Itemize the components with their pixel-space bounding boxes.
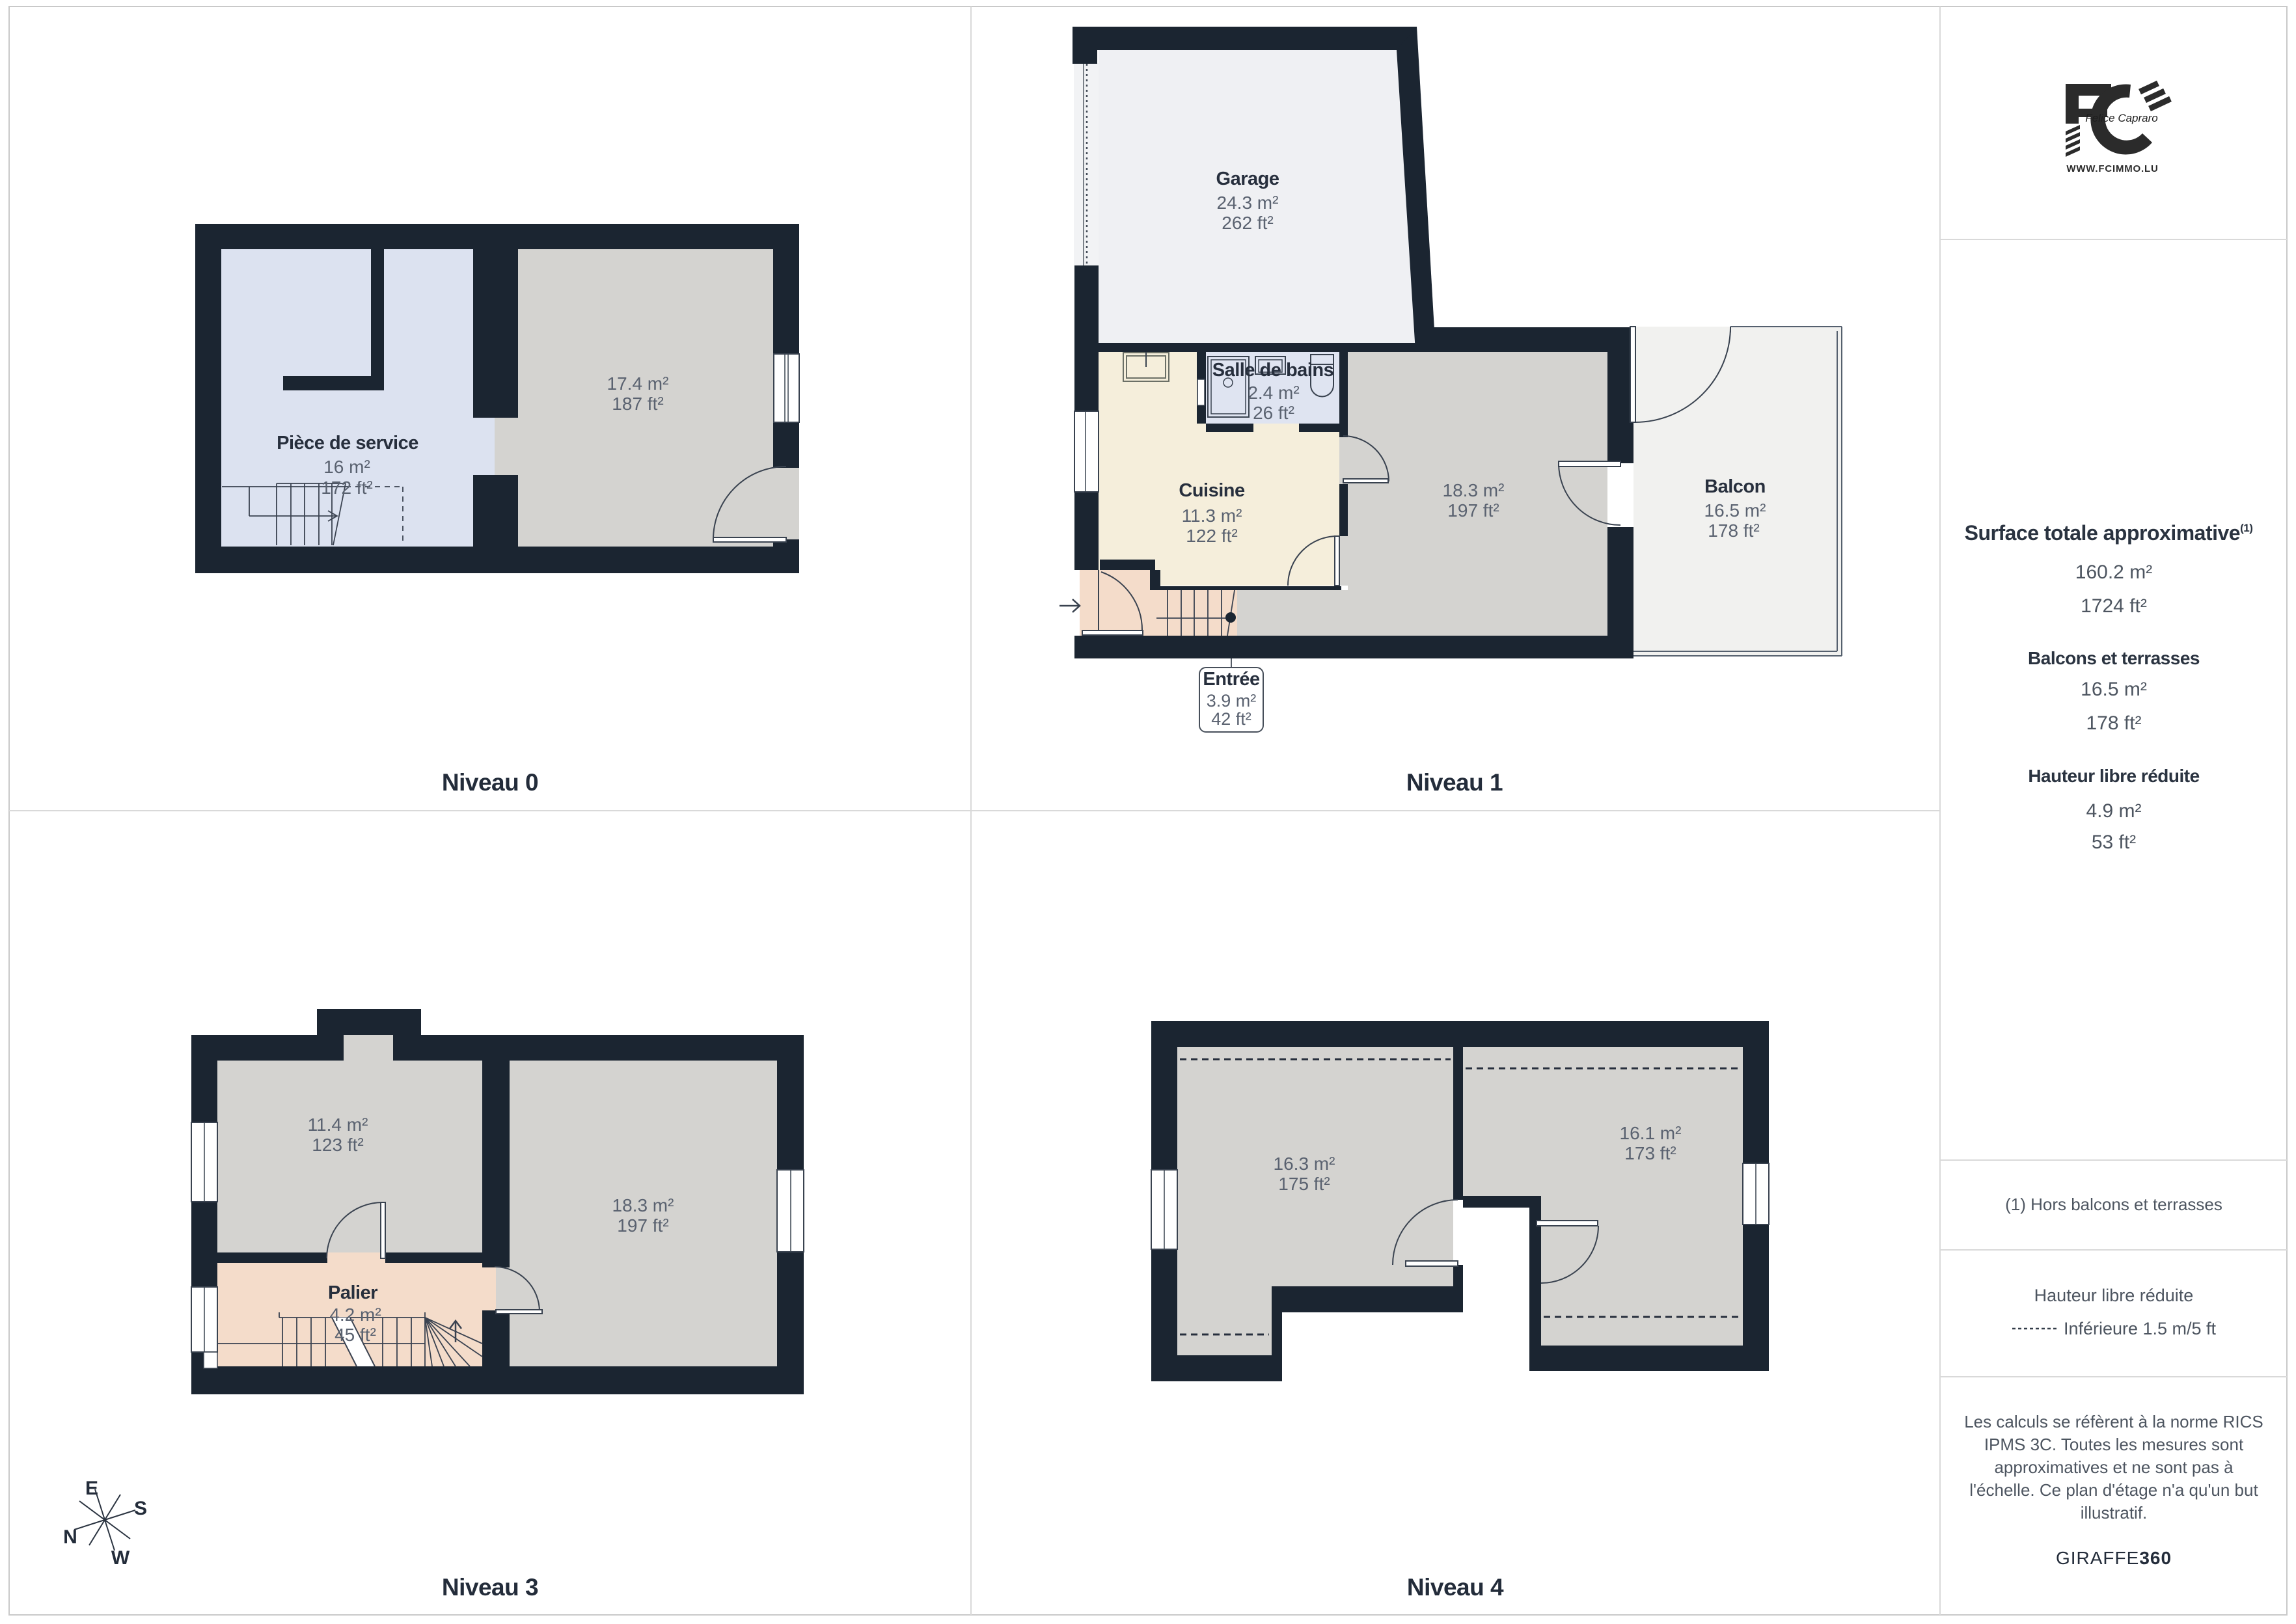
- svg-text:42 ft²: 42 ft²: [1211, 709, 1251, 729]
- svg-text:Inférieure 1.5 m/5 ft: Inférieure 1.5 m/5 ft: [2064, 1319, 2217, 1338]
- svg-text:Entrée: Entrée: [1203, 669, 1260, 690]
- svg-text:160.2 m²: 160.2 m²: [2075, 562, 2152, 583]
- svg-text:S: S: [134, 1498, 147, 1519]
- svg-text:11.3 m²: 11.3 m²: [1182, 506, 1242, 526]
- svg-text:approximatives et ne sont pas: approximatives et ne sont pas à: [1994, 1457, 2234, 1477]
- svg-text:16.5 m²: 16.5 m²: [1704, 500, 1766, 521]
- svg-text:1724 ft²: 1724 ft²: [2081, 595, 2147, 617]
- svg-text:4.9 m²: 4.9 m²: [2086, 800, 2141, 822]
- svg-text:Les calculs se réfèrent à la n: Les calculs se réfèrent à la norme RICS: [1964, 1412, 2263, 1431]
- svg-text:GIRAFFE360: GIRAFFE360: [2056, 1548, 2172, 1568]
- svg-text:175 ft²: 175 ft²: [1278, 1174, 1330, 1194]
- svg-text:Hauteur libre réduite: Hauteur libre réduite: [2034, 1286, 2194, 1305]
- svg-text:178 ft²: 178 ft²: [2086, 712, 2141, 734]
- svg-text:Surface totale approximative(1: Surface totale approximative(1): [1965, 521, 2253, 545]
- svg-text:16.5 m²: 16.5 m²: [2081, 679, 2147, 700]
- svg-text:Niveau 1: Niveau 1: [1406, 769, 1503, 796]
- svg-text:Pièce de service: Pièce de service: [277, 433, 418, 453]
- svg-text:WWW.FCIMMO.LU: WWW.FCIMMO.LU: [2066, 163, 2158, 174]
- svg-text:Niveau 3: Niveau 3: [442, 1574, 538, 1601]
- svg-text:Niveau 4: Niveau 4: [1407, 1574, 1504, 1601]
- svg-text:IPMS 3C. Toutes les mesures so: IPMS 3C. Toutes les mesures sont: [1984, 1435, 2244, 1454]
- svg-text:11.4 m²: 11.4 m²: [308, 1115, 368, 1135]
- svg-text:Palier: Palier: [328, 1282, 377, 1303]
- svg-text:Felice Capraro: Felice Capraro: [2085, 112, 2158, 124]
- svg-text:(1) Hors balcons et terrasses: (1) Hors balcons et terrasses: [2005, 1195, 2222, 1214]
- svg-text:16 m²: 16 m²: [323, 457, 370, 477]
- svg-text:2.4 m²: 2.4 m²: [1248, 383, 1299, 403]
- svg-text:16.1 m²: 16.1 m²: [1620, 1123, 1682, 1143]
- svg-text:Balcons et terrasses: Balcons et terrasses: [2028, 648, 2200, 668]
- svg-text:262 ft²: 262 ft²: [1222, 213, 1273, 233]
- svg-text:197 ft²: 197 ft²: [617, 1215, 668, 1236]
- svg-text:3.9 m²: 3.9 m²: [1207, 691, 1257, 710]
- svg-text:Hauteur libre réduite: Hauteur libre réduite: [2028, 766, 2199, 786]
- svg-text:16.3 m²: 16.3 m²: [1274, 1154, 1335, 1174]
- svg-text:18.3 m²: 18.3 m²: [612, 1195, 674, 1215]
- svg-text:45 ft²: 45 ft²: [335, 1325, 376, 1345]
- svg-text:Niveau 0: Niveau 0: [442, 769, 538, 796]
- svg-text:172 ft²: 172 ft²: [321, 478, 372, 498]
- svg-text:Balcon: Balcon: [1704, 476, 1766, 497]
- svg-text:53 ft²: 53 ft²: [2092, 832, 2136, 853]
- svg-text:E: E: [85, 1478, 98, 1499]
- svg-text:26 ft²: 26 ft²: [1253, 403, 1294, 423]
- svg-text:173 ft²: 173 ft²: [1624, 1143, 1676, 1163]
- svg-text:illustratif.: illustratif.: [2081, 1503, 2148, 1522]
- svg-text:Salle de bains: Salle de bains: [1212, 360, 1333, 381]
- svg-text:l'échelle. Ce plan d'étage n'a: l'échelle. Ce plan d'étage n'a qu'un but: [1969, 1480, 2258, 1500]
- svg-text:4.2 m²: 4.2 m²: [329, 1305, 381, 1325]
- svg-text:N: N: [63, 1526, 77, 1548]
- svg-text:W: W: [111, 1547, 130, 1569]
- svg-text:123 ft²: 123 ft²: [312, 1135, 363, 1155]
- svg-text:17.4 m²: 17.4 m²: [607, 373, 669, 394]
- svg-text:Cuisine: Cuisine: [1179, 480, 1245, 501]
- svg-text:24.3 m²: 24.3 m²: [1217, 193, 1279, 213]
- svg-text:122 ft²: 122 ft²: [1186, 526, 1237, 546]
- svg-text:18.3 m²: 18.3 m²: [1443, 480, 1505, 500]
- svg-text:197 ft²: 197 ft²: [1447, 500, 1499, 521]
- svg-text:178 ft²: 178 ft²: [1708, 521, 1759, 541]
- svg-text:187 ft²: 187 ft²: [612, 394, 663, 414]
- svg-text:Garage: Garage: [1216, 169, 1279, 189]
